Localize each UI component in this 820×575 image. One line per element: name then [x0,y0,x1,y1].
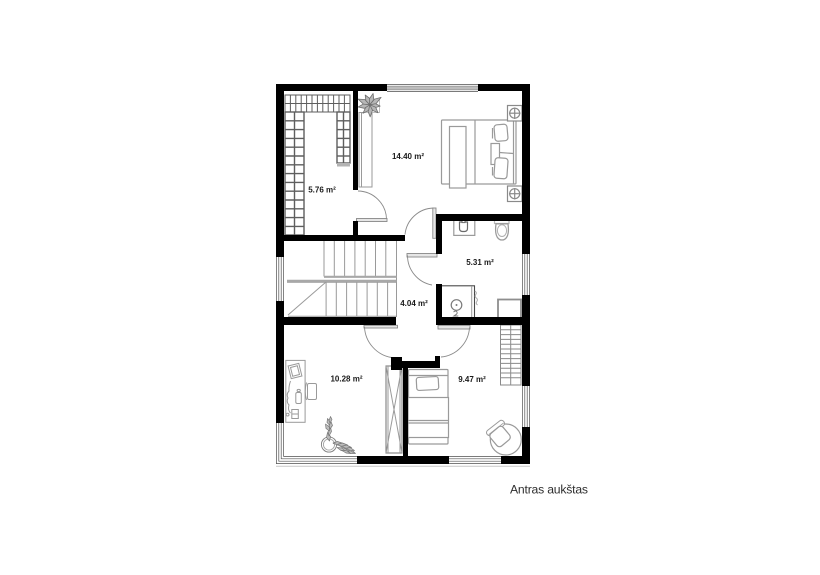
svg-text:Antras aukštas: Antras aukštas [510,483,588,497]
svg-text:5.76 m²: 5.76 m² [308,186,336,195]
svg-text:4.04 m²: 4.04 m² [400,299,428,308]
svg-text:14.40 m²: 14.40 m² [392,152,424,161]
svg-text:9.47 m²: 9.47 m² [458,375,486,384]
svg-text:5.31 m²: 5.31 m² [466,258,494,267]
svg-text:10.28 m²: 10.28 m² [330,375,362,384]
